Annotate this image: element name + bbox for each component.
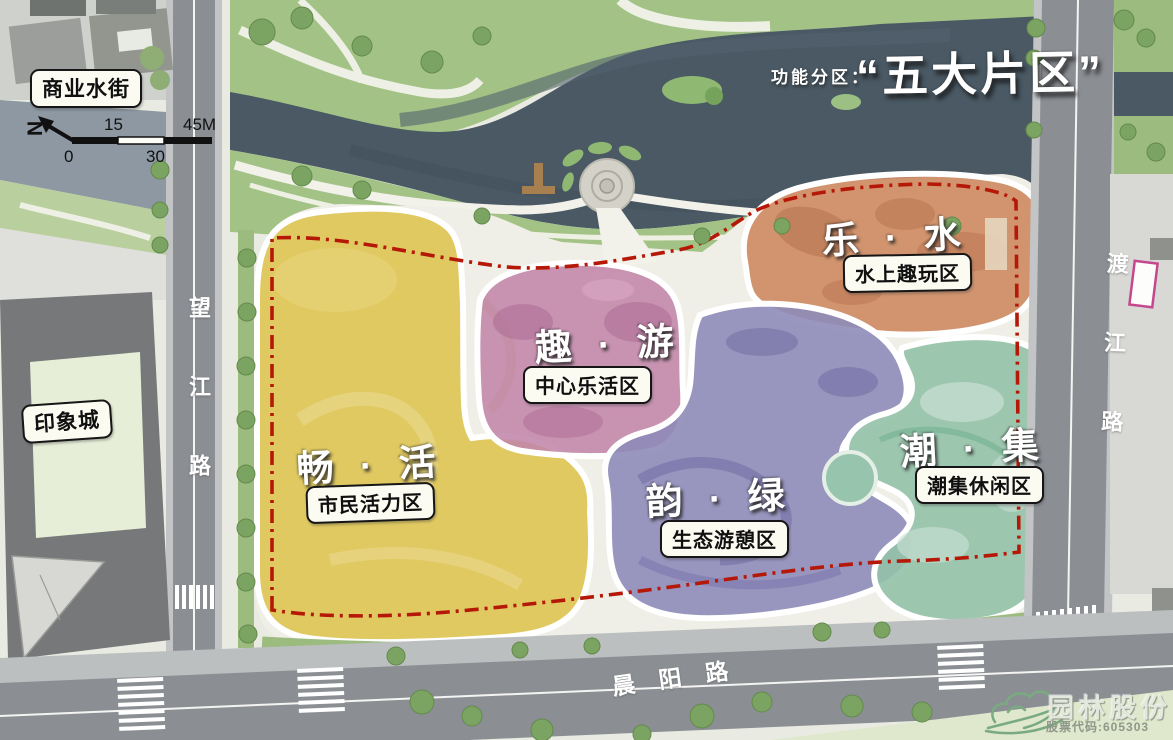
zone-building bbox=[985, 218, 1007, 270]
page-title: “五大片区” bbox=[855, 36, 1104, 106]
zone-texture bbox=[582, 279, 634, 301]
zone-texture bbox=[726, 328, 798, 356]
yinxiangcheng-building bbox=[0, 292, 170, 660]
landmark-yinxiangcheng: 印象城 bbox=[21, 399, 114, 444]
site-plan: N 15 45M 0 30 功能分区： “五大片区” 商业水街 印象城 望江路 … bbox=[0, 0, 1173, 740]
zone-tag-zhongxin-lehuo: 中心乐活区 bbox=[523, 366, 652, 404]
zone-tag-shimin-huoli: 市民活力区 bbox=[305, 482, 435, 524]
road-label-wangjiang: 望江路 bbox=[182, 296, 214, 533]
lawn-circle bbox=[824, 452, 876, 504]
zone-tag-shengtai-youqi: 生态游憩区 bbox=[660, 520, 789, 558]
svg-text:45M: 45M bbox=[183, 115, 216, 134]
svg-text:0: 0 bbox=[64, 147, 73, 166]
svg-text:15: 15 bbox=[104, 115, 123, 134]
zone-name-yunlv: 韵 · 绿 bbox=[633, 464, 806, 527]
island-tree bbox=[705, 87, 723, 105]
logo-stock-code: 股票代码:605303 bbox=[1046, 718, 1149, 735]
zone-tag-shuishang-quwan: 水上趣玩区 bbox=[843, 253, 973, 293]
event-parcel bbox=[1129, 261, 1157, 307]
zone-texture bbox=[523, 406, 603, 438]
zone-tag-chaoji-xiuxian: 潮集休闲区 bbox=[915, 466, 1044, 504]
landmark-water-street: 商业水街 bbox=[30, 69, 142, 108]
zone-name-quyou: 趣 · 游 bbox=[522, 310, 695, 373]
zone-texture bbox=[818, 367, 878, 397]
zone-texture bbox=[273, 248, 397, 312]
svg-text:30: 30 bbox=[146, 147, 165, 166]
